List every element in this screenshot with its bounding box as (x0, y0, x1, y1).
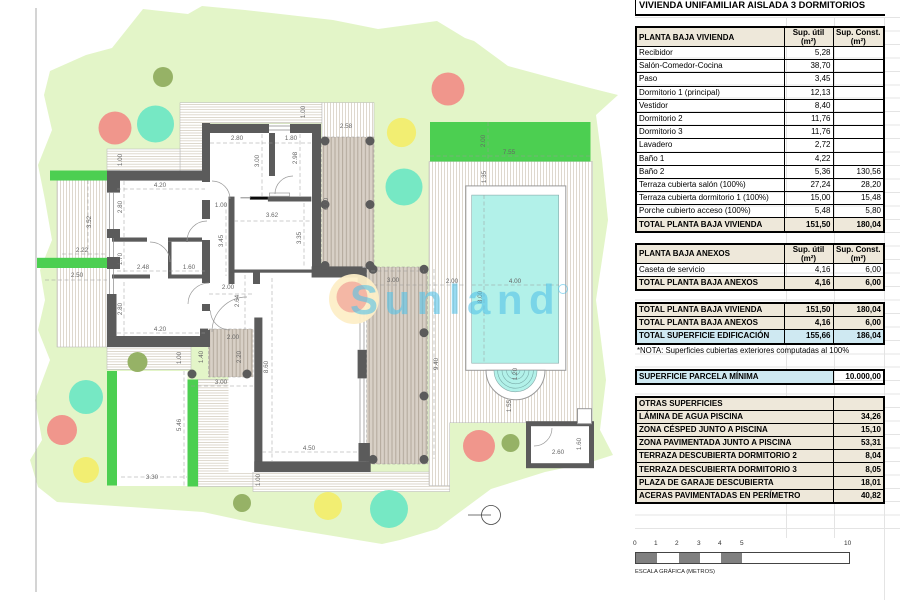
svg-text:2.22: 2.22 (76, 247, 89, 254)
svg-text:1.00: 1.00 (117, 153, 124, 166)
svg-text:2.58: 2.58 (340, 123, 353, 130)
svg-text:1.35: 1.35 (481, 170, 488, 183)
svg-text:3.52: 3.52 (86, 215, 93, 228)
svg-text:3.62: 3.62 (266, 212, 279, 219)
svg-text:3.35: 3.35 (296, 231, 303, 244)
svg-text:1.00: 1.00 (176, 351, 183, 364)
svg-text:1.00: 1.00 (300, 105, 307, 118)
svg-text:1.60: 1.60 (183, 264, 196, 271)
svg-text:2.64: 2.64 (234, 294, 241, 307)
svg-text:4.20: 4.20 (154, 326, 167, 333)
svg-text:1.40: 1.40 (198, 350, 205, 363)
svg-text:2.00: 2.00 (480, 134, 487, 147)
svg-text:3.30: 3.30 (146, 474, 159, 481)
svg-text:2.80: 2.80 (117, 200, 124, 213)
svg-text:3.45: 3.45 (218, 234, 225, 247)
svg-text:1.00: 1.00 (255, 473, 262, 486)
svg-text:2.80: 2.80 (231, 135, 244, 142)
svg-text:9.40: 9.40 (433, 357, 440, 370)
svg-text:4.20: 4.20 (154, 182, 167, 189)
svg-text:2.00: 2.00 (222, 284, 235, 291)
svg-text:2.98: 2.98 (292, 151, 299, 164)
svg-text:Sunland: Sunland (350, 276, 561, 323)
svg-text:3.00: 3.00 (254, 154, 261, 167)
svg-text:6.00: 6.00 (323, 197, 330, 210)
svg-text:1.70: 1.70 (117, 252, 124, 265)
svg-text:5.46: 5.46 (176, 418, 183, 431)
svg-text:4.50: 4.50 (303, 445, 316, 452)
svg-text:2.50: 2.50 (71, 272, 84, 279)
svg-text:1.00: 1.00 (215, 202, 228, 209)
svg-text:1.20: 1.20 (512, 367, 519, 380)
svg-text:2.20: 2.20 (236, 350, 243, 363)
svg-text:7.55: 7.55 (503, 149, 516, 156)
svg-text:1.80: 1.80 (285, 135, 298, 142)
svg-text:8.60: 8.60 (263, 360, 270, 373)
svg-text:1.55: 1.55 (506, 399, 513, 412)
svg-text:2.00: 2.00 (227, 334, 240, 341)
svg-text:2.48: 2.48 (137, 264, 150, 271)
svg-text:2.80: 2.80 (117, 302, 124, 315)
svg-text:1.60: 1.60 (576, 437, 583, 450)
svg-text:2.60: 2.60 (552, 449, 565, 456)
svg-text:3.00: 3.00 (215, 379, 228, 386)
